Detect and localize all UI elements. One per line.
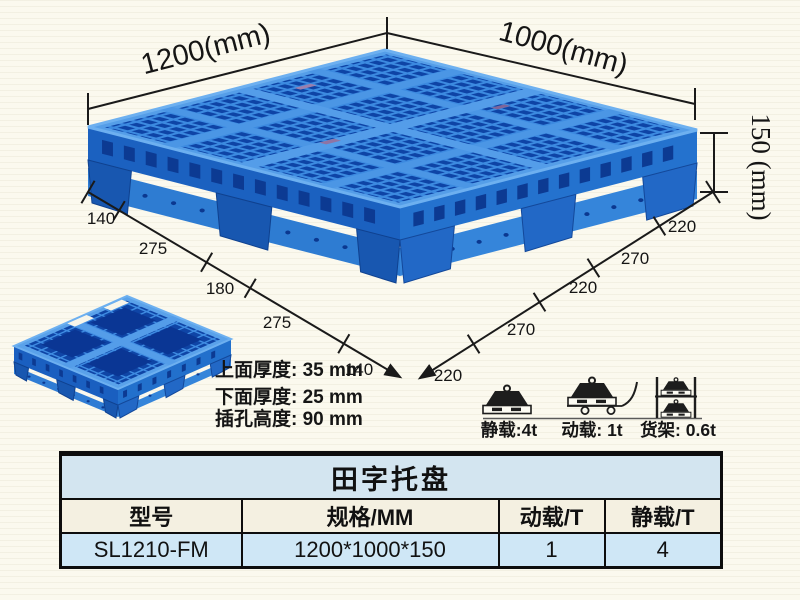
note-bottom-thickness: 下面厚度: 25 mm — [215, 385, 363, 408]
segment-label: 270 — [507, 320, 535, 339]
load-rating-icons: 静载:4t 动载: 1t 货架: 0.6t — [481, 377, 716, 440]
product-spec-sheet: { "dimensions": { "length_label": "1200(… — [0, 0, 800, 600]
segment-label: 220 — [569, 278, 597, 297]
static-load-icon — [483, 386, 531, 414]
note-fork-height: 插孔高度: 90 mm — [215, 407, 363, 430]
static-load-label: 静载:4t — [481, 420, 538, 440]
dim-width-label: 1000(mm) — [495, 15, 631, 81]
cell-dynamic-load: 1 — [499, 533, 605, 568]
spec-table: 田字托盘 型号 规格/MM 动载/T 静载/T SL1210-FM 1200*1… — [59, 451, 723, 569]
cell-size: 1200*1000*150 — [242, 533, 499, 568]
table-row: SL1210-FM 1200*1000*150 1 4 — [61, 533, 722, 568]
dim-length-label: 1200(mm) — [138, 17, 274, 81]
header-dynamic-load: 动载/T — [499, 499, 605, 533]
note-top-thickness: 上面厚度: 35 mm — [215, 358, 363, 381]
segment-label: 180 — [206, 279, 234, 298]
dim-height-150: 150 (mm) — [700, 113, 776, 220]
rack-load-icon — [655, 377, 697, 418]
rack-load-label: 货架: 0.6t — [640, 420, 716, 440]
cell-static-load: 4 — [605, 533, 722, 568]
header-size: 规格/MM — [242, 499, 499, 533]
thickness-notes: 上面厚度: 35 mm 下面厚度: 25 mm 插孔高度: 90 mm — [215, 358, 363, 430]
spec-table-title: 田字托盘 — [61, 454, 722, 500]
segment-label: 140 — [87, 209, 115, 228]
cell-model: SL1210-FM — [61, 533, 242, 568]
dim-height-label: 150 (mm) — [746, 113, 776, 220]
segment-label: 270 — [621, 249, 649, 268]
dynamic-load-label: 动载: 1t — [561, 420, 622, 440]
segment-label: 275 — [139, 239, 167, 258]
header-static-load: 静载/T — [605, 499, 722, 533]
segment-label: 275 — [263, 313, 291, 332]
header-model: 型号 — [61, 499, 242, 533]
segment-label: 220 — [668, 217, 696, 236]
dynamic-load-icon — [567, 378, 637, 415]
pallet-bottom-view — [14, 296, 231, 418]
pallet-diagram: 1200(mm) 1000(mm) 150 (mm) 140 275 180 2… — [0, 0, 800, 450]
segment-label: 220 — [434, 366, 462, 385]
